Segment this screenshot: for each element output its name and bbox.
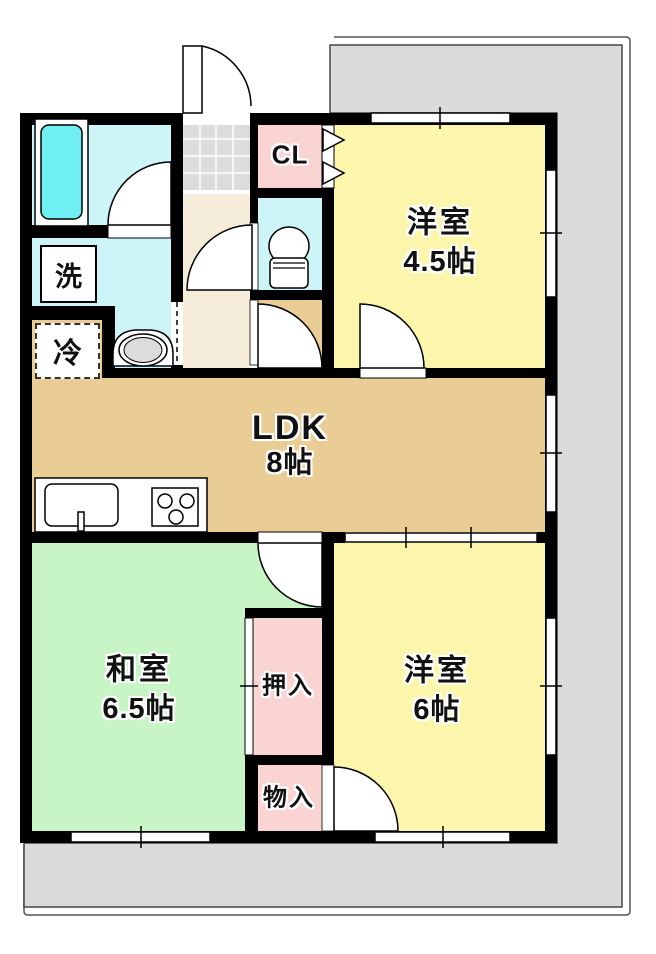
ldk-size: 8帖 [266, 448, 313, 478]
western-top-door-threshold [360, 368, 426, 378]
oshiire-label: 押入 [262, 673, 314, 698]
closet-label: CL [272, 141, 309, 168]
japanese-room-floor [32, 543, 245, 831]
entry-door-leaf [183, 46, 202, 113]
japanese-room-name: 和室 [106, 654, 172, 686]
western-room-bottom-name: 洋室 [404, 655, 470, 687]
bathroom-door-threshold [108, 225, 171, 238]
floor-plan-drawing [0, 0, 656, 954]
washbasin [113, 330, 173, 366]
kitchen-faucet [78, 512, 84, 531]
ldk-japanese-door-gap [258, 532, 322, 543]
western-room-top-name: 洋室 [407, 207, 473, 239]
storage-label: 物入 [263, 785, 315, 810]
western-room-bottom-size: 6帖 [413, 695, 460, 725]
floor-plan: CL 洋室 4.5帖 LDK 8帖 和室 6.5帖 洋室 6帖 押入 物入 洗 … [0, 0, 656, 954]
entry-door-arc [202, 46, 251, 106]
toilet [269, 227, 309, 288]
bathtub [35, 119, 88, 226]
japanese-room-size: 6.5帖 [102, 694, 175, 724]
ldk-name: LDK [252, 411, 328, 447]
genkan-step [183, 190, 250, 194]
western-room-top-size: 4.5帖 [403, 247, 476, 277]
laundry-box: 洗 [40, 245, 97, 303]
storage-door-gap [322, 765, 334, 831]
laundry-label: 洗 [55, 255, 82, 294]
entry-opening [183, 113, 250, 125]
refrigerator-box: 冷 [35, 323, 100, 379]
refrigerator-label: 冷 [53, 330, 82, 372]
kitchen-counter [35, 478, 207, 532]
corridor-ldk-door-gap [250, 300, 258, 365]
